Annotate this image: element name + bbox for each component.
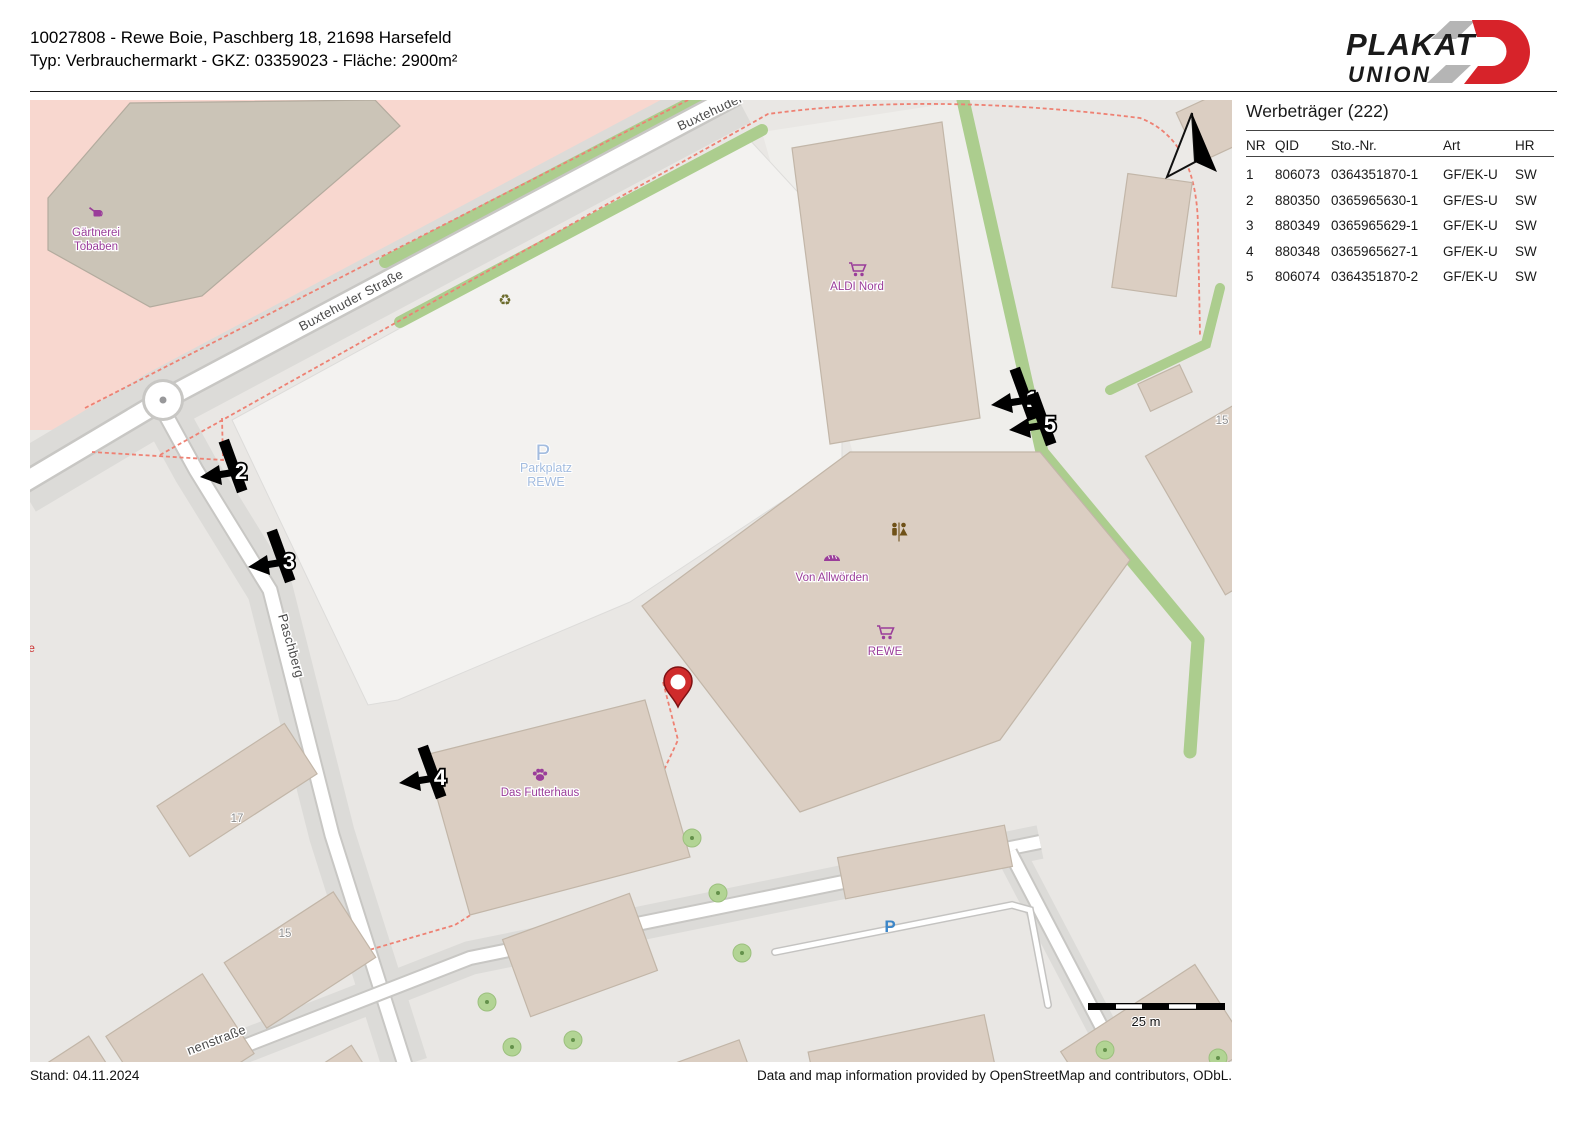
footer-attribution: Data and map information provided by Ope… (30, 1068, 1232, 1083)
col-sto: Sto.-Nr. (1331, 138, 1443, 153)
cell-nr: 4 (1246, 244, 1275, 259)
panel-title: Werbeträger (222) (1246, 101, 1554, 122)
cell-hr: SW (1515, 193, 1550, 208)
svg-text:5: 5 (1044, 412, 1056, 437)
table-row: 1 806073 0364351870-1 GF/EK-U SW (1246, 162, 1554, 188)
header-divider (30, 91, 1557, 92)
cell-nr: 5 (1246, 269, 1275, 284)
house-number-15a: 15 (279, 928, 292, 940)
cell-hr: SW (1515, 244, 1550, 259)
svg-text:Das Futterhaus: Das Futterhaus (501, 787, 580, 799)
cell-nr: 2 (1246, 193, 1275, 208)
table-header-row: NR QID Sto.-Nr. Art HR (1246, 134, 1554, 156)
table-row: 2 880350 0365965630-1 GF/ES-U SW (1246, 188, 1554, 214)
logo-text-plakat: PLAKAT (1346, 27, 1477, 62)
svg-text:2: 2 (235, 459, 247, 484)
report-subtitle: Typ: Verbrauchermarkt - GKZ: 03359023 - … (30, 52, 457, 71)
recycling-icon: ♻ (498, 292, 511, 309)
panel-divider-header (1246, 156, 1554, 157)
scale-label: 25 m (1132, 1014, 1161, 1029)
svg-text:Parkplatz: Parkplatz (520, 461, 572, 475)
col-qid: QID (1275, 138, 1331, 153)
cell-sto: 0365965630-1 (1331, 193, 1443, 208)
svg-text:Tobaben: Tobaben (74, 241, 118, 253)
cell-sto: 0364351870-1 (1331, 167, 1443, 182)
svg-text:Von Allwörden: Von Allwörden (796, 572, 869, 584)
cell-qid: 880349 (1275, 218, 1331, 233)
cell-sto: 0365965629-1 (1331, 218, 1443, 233)
report-page: { "header": { "line1": "10027808 - Rewe … (0, 0, 1587, 1123)
col-hr: HR (1515, 138, 1550, 153)
panel-divider-top (1246, 130, 1554, 131)
map-canvas: Buxtehuder Straße Buxtehuder Paschberg n… (30, 100, 1232, 1062)
cell-qid: 880348 (1275, 244, 1331, 259)
col-art: Art (1443, 138, 1515, 153)
table-row: 5 806074 0364351870-2 GF/EK-U SW (1246, 264, 1554, 290)
report-title: 10027808 - Rewe Boie, Paschberg 18, 2169… (30, 28, 452, 48)
cell-qid: 806074 (1275, 269, 1331, 284)
cell-hr: SW (1515, 269, 1550, 284)
cell-qid: 806073 (1275, 167, 1331, 182)
cell-art: GF/ES-U (1443, 193, 1515, 208)
svg-text:REWE: REWE (527, 475, 565, 489)
cell-nr: 1 (1246, 167, 1275, 182)
cell-nr: 3 (1246, 218, 1275, 233)
parking-p-icon: P (884, 917, 895, 936)
svg-text:4: 4 (434, 765, 447, 790)
svg-text:Gärtnerei: Gärtnerei (72, 227, 120, 239)
cell-sto: 0365965627-1 (1331, 244, 1443, 259)
logo-gray-slash-bottom (1427, 65, 1471, 83)
table-row: 4 880348 0365965627-1 GF/EK-U SW (1246, 239, 1554, 265)
cell-sto: 0364351870-2 (1331, 269, 1443, 284)
cell-hr: SW (1515, 218, 1550, 233)
cell-hr: SW (1515, 167, 1550, 182)
logo-text-union: UNION (1348, 62, 1431, 87)
col-nr: NR (1246, 138, 1275, 153)
svg-text:ALDI Nord: ALDI Nord (830, 281, 884, 293)
table-row: 3 880349 0365965629-1 GF/EK-U SW (1246, 213, 1554, 239)
cell-qid: 880350 (1275, 193, 1331, 208)
svg-text:3: 3 (283, 549, 295, 574)
house-number-15b: 15 (1216, 415, 1229, 427)
clipped-red-label: ie (30, 643, 35, 655)
plakat-union-logo: PLAKAT UNION (1346, 18, 1536, 93)
svg-text:REWE: REWE (868, 646, 903, 658)
cell-art: GF/EK-U (1443, 244, 1515, 259)
cell-art: GF/EK-U (1443, 269, 1515, 284)
werbetraeger-panel: Werbeträger (222) NR QID Sto.-Nr. Art HR… (1246, 101, 1554, 290)
house-number-17: 17 (231, 813, 244, 825)
cell-art: GF/EK-U (1443, 167, 1515, 182)
cell-art: GF/EK-U (1443, 218, 1515, 233)
